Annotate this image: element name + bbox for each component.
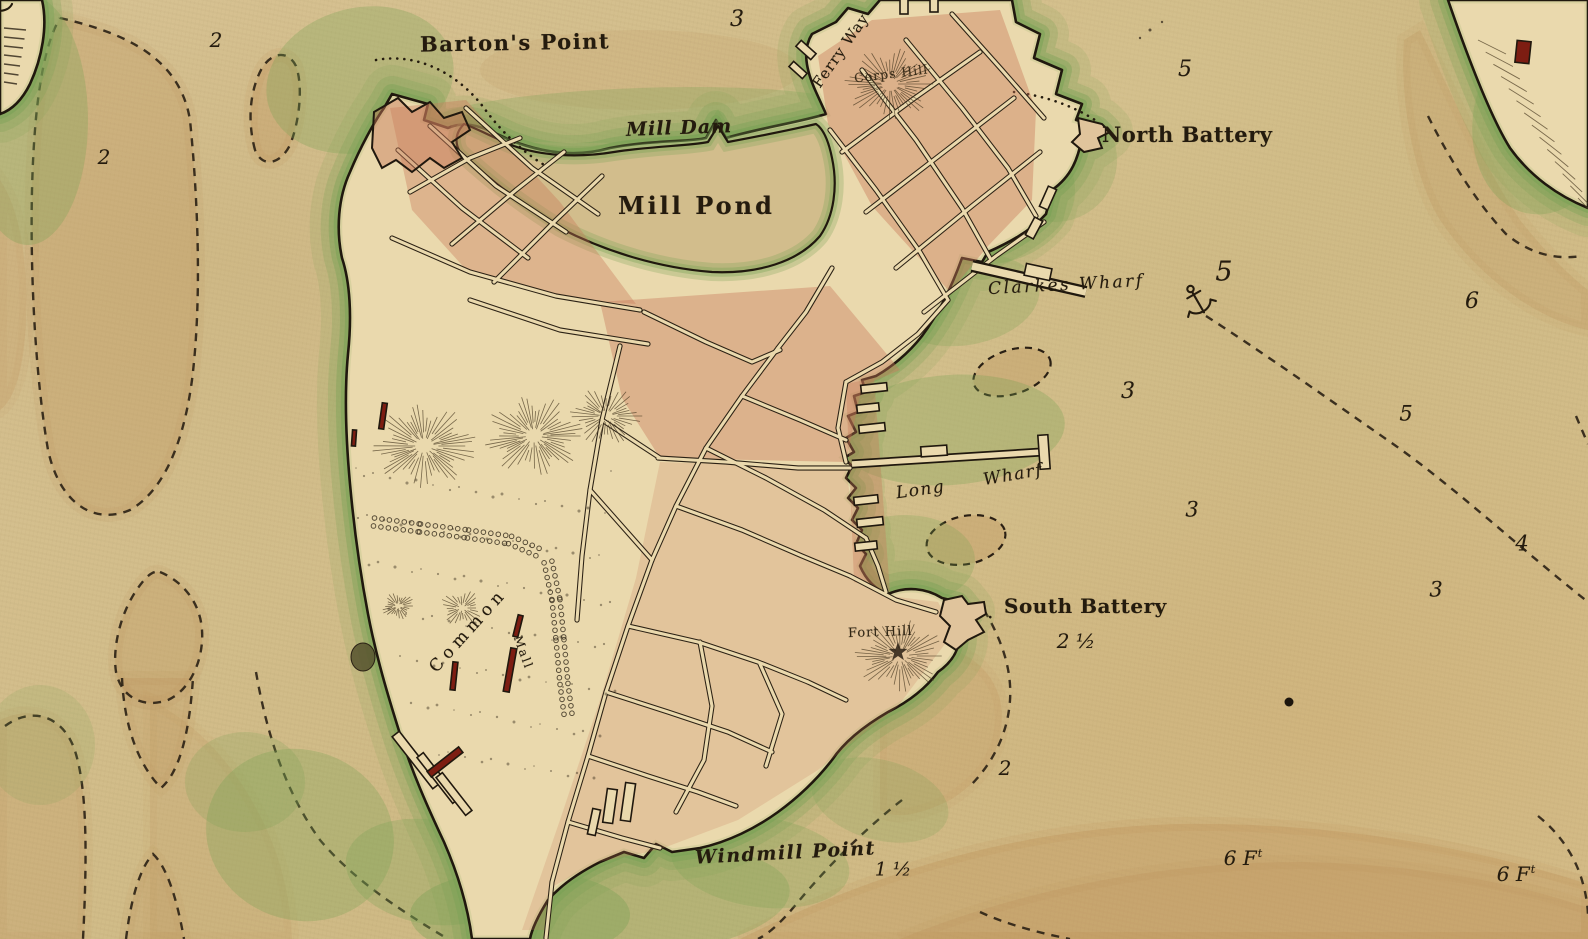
depth-sounding: 2 (98, 147, 111, 167)
anchor-icon (1175, 278, 1218, 320)
label-bartons-point: Barton's Point (420, 30, 610, 54)
depth-sounding: 1 ½ (875, 861, 912, 880)
depth-sounding: 6 Ft (1224, 848, 1262, 868)
depth-sounding: 6 Ft (1497, 864, 1535, 884)
depth-sounding: 5 (1178, 59, 1192, 81)
map-canvas: Barton's Point Ferry Way Corps Hill Nort… (0, 0, 1588, 939)
depth-sounding: 2 ½ (1057, 631, 1095, 651)
depth-sounding: 3 (1429, 580, 1442, 601)
depth-sounding: 3 (730, 9, 744, 31)
depth-sounding: 3 (1121, 381, 1135, 403)
label-mill-pond: Mill Pond (618, 194, 775, 218)
depth-sounding: 4 (1515, 534, 1528, 555)
depth-sounding: 2 (999, 758, 1012, 778)
label-north-battery: North Battery (1102, 124, 1272, 145)
depth-sounding: 5 (1215, 259, 1232, 286)
label-south-battery: South Battery (1004, 596, 1167, 616)
map-graphic (0, 0, 1588, 939)
depth-sounding: 5 (1399, 404, 1412, 425)
label-mill-dam: Mill Dam (626, 117, 733, 140)
depth-sounding: 2 (210, 30, 223, 50)
depth-sounding: 3 (1185, 500, 1198, 521)
label-fort-hill: Fort Hill (848, 625, 913, 640)
depth-sounding: 6 (1465, 291, 1479, 313)
